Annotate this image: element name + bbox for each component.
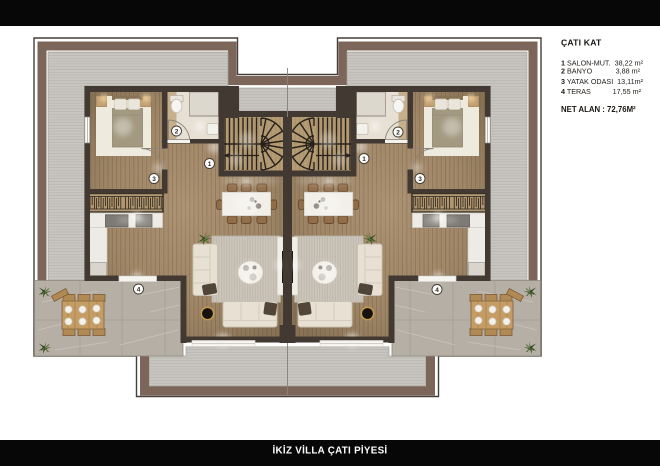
svg-text:4: 4 xyxy=(137,286,141,293)
svg-text:1: 1 xyxy=(362,156,366,163)
svg-text:4: 4 xyxy=(435,287,439,294)
svg-text:3 YATAK ODASI: 3 YATAK ODASI xyxy=(561,77,613,86)
svg-text:İKİZ VİLLA ÇATI PİYESİ: İKİZ VİLLA ÇATI PİYESİ xyxy=(273,446,388,457)
svg-text:1: 1 xyxy=(208,161,212,168)
svg-text:2 BANYO: 2 BANYO xyxy=(561,66,593,75)
svg-text:3: 3 xyxy=(418,176,422,183)
svg-text:17,55 m²: 17,55 m² xyxy=(613,87,642,96)
svg-text:2: 2 xyxy=(175,128,179,135)
svg-text:ÇATI KAT: ÇATI KAT xyxy=(561,37,602,47)
svg-text:13,11m²: 13,11m² xyxy=(617,77,643,86)
svg-text:2: 2 xyxy=(396,129,400,136)
svg-text:NET ALAN : 72,76M²: NET ALAN : 72,76M² xyxy=(561,105,636,114)
svg-text:3: 3 xyxy=(152,176,156,183)
svg-text:4 TERAS: 4 TERAS xyxy=(561,87,591,96)
svg-text:3,88 m²: 3,88 m² xyxy=(616,66,641,75)
